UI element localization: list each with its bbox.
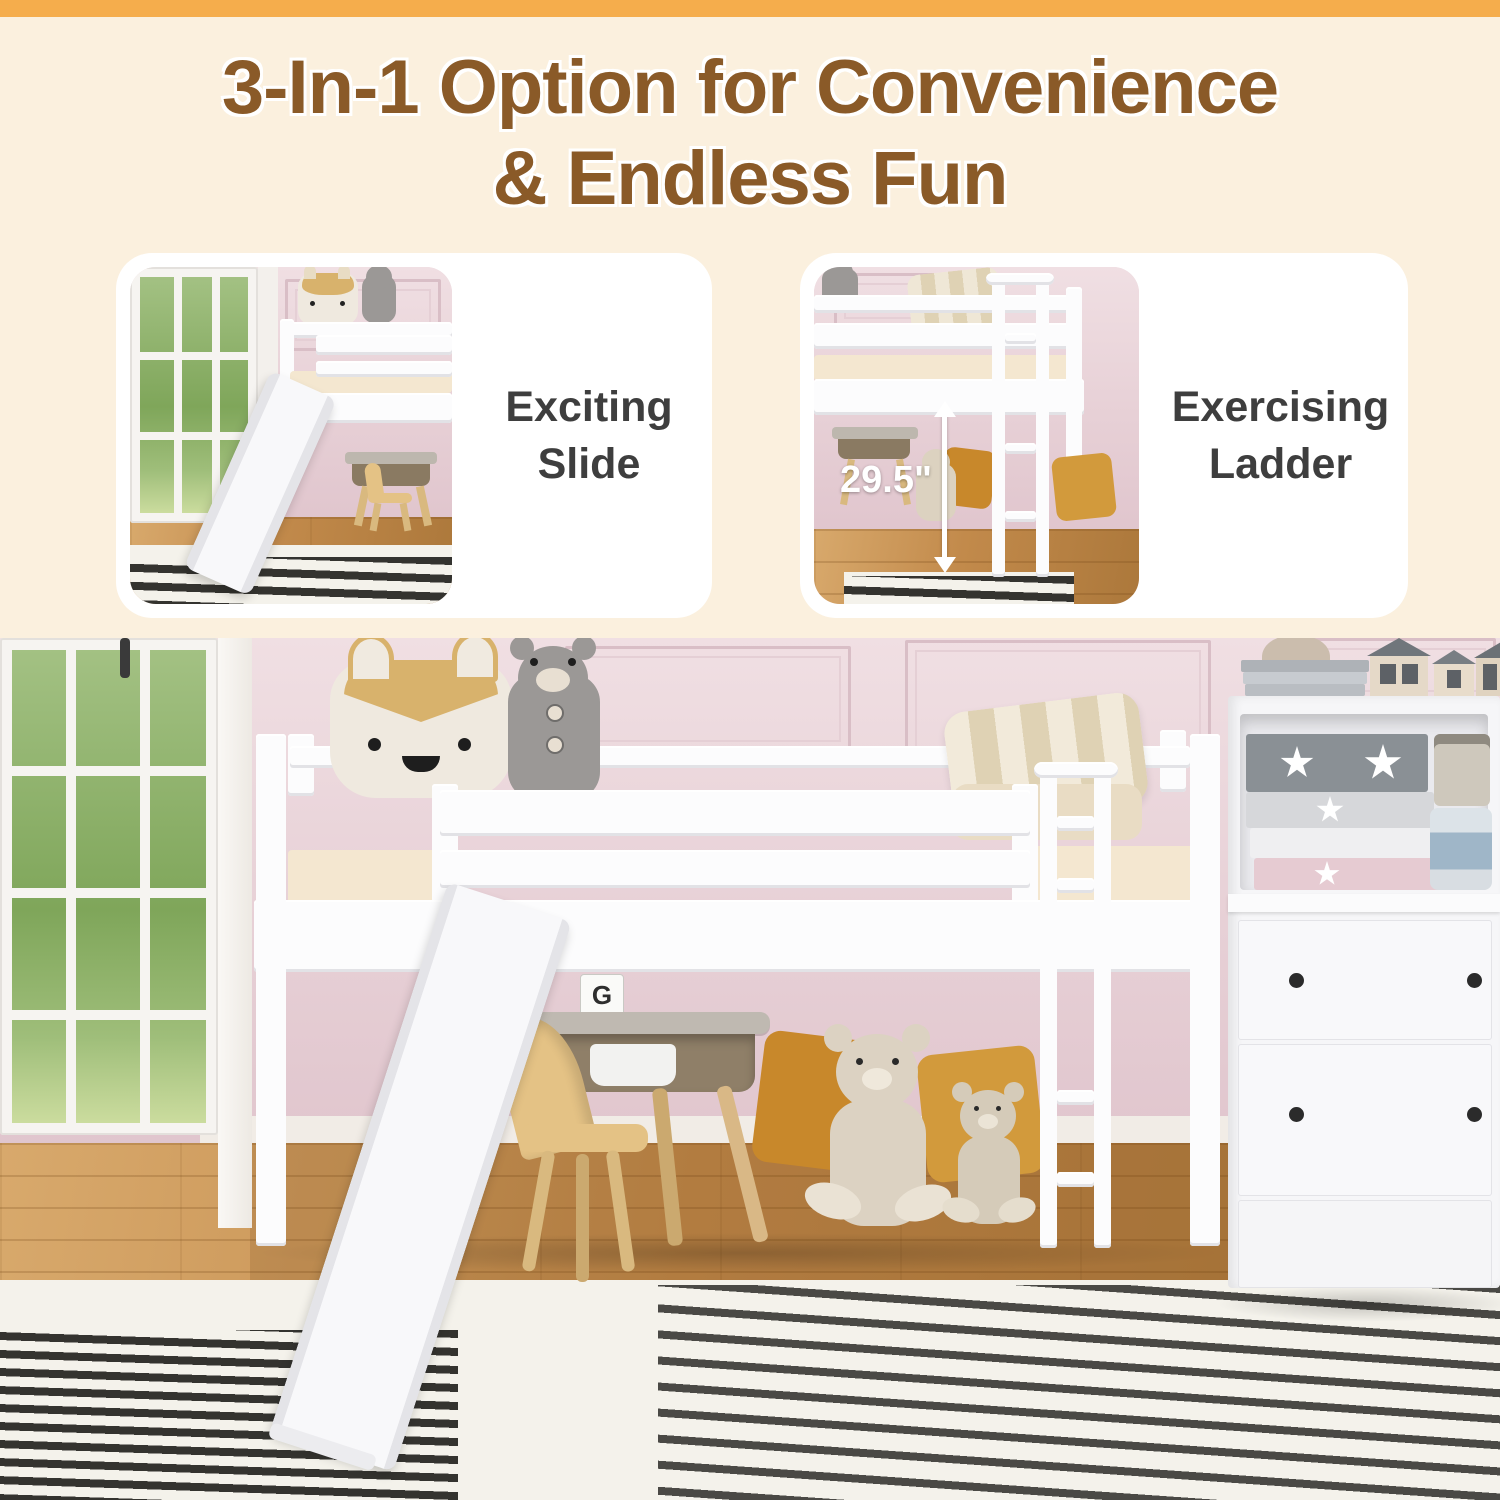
- ladder-rail: [1094, 772, 1111, 1248]
- ladder-rail: [992, 281, 1005, 577]
- window-mullion: [140, 432, 248, 440]
- fox-eye: [368, 738, 381, 751]
- teddy-bear: [362, 275, 396, 323]
- window-mullion: [140, 352, 248, 360]
- plush-bear-ear: [824, 1024, 852, 1052]
- star-decoration: [1280, 746, 1314, 780]
- star-box-pink: [1254, 858, 1446, 890]
- ladder-rung: [1005, 511, 1036, 522]
- slide-label: Exciting Slide: [466, 253, 712, 618]
- ladder-hook: [986, 273, 1054, 285]
- teddy-bear-muzzle: [536, 668, 570, 692]
- decor-house: [1476, 642, 1500, 696]
- bed-leg-right: [1190, 734, 1220, 1246]
- fox-ear: [348, 638, 394, 684]
- fox-eye: [310, 301, 315, 306]
- kids-desk: [832, 427, 918, 439]
- ladder-label: Exercising Ladder: [1153, 253, 1408, 618]
- measure-arrow-line: [942, 415, 947, 559]
- window-mullion: [174, 277, 182, 513]
- mustard-pillow: [1051, 452, 1117, 522]
- blue-tin: [1430, 808, 1492, 890]
- product-poster: 3-In-1 Option for Convenience & Endless …: [0, 0, 1500, 1500]
- house-window: [1483, 664, 1497, 690]
- star-decoration: [1364, 744, 1402, 782]
- fox-pillow: [330, 660, 512, 798]
- dresser-divider: [1228, 894, 1500, 912]
- page-title: 3-In-1 Option for Convenience & Endless …: [0, 42, 1500, 224]
- plush-bear-large: [808, 1034, 958, 1264]
- plush-bear-eye: [856, 1058, 863, 1065]
- bed-leg-left: [256, 734, 286, 1246]
- window-greenery: [12, 650, 206, 1123]
- house-roof: [1432, 650, 1476, 664]
- drawer-knob: [1467, 973, 1482, 988]
- plush-bear-muzzle: [978, 1114, 998, 1129]
- dresser-shadow: [1216, 1286, 1500, 1322]
- bed-guard-rail: [440, 850, 1030, 888]
- plush-bear-ear: [902, 1024, 930, 1052]
- fox-eye: [458, 738, 471, 751]
- chair-leg: [576, 1154, 589, 1282]
- drawer: [1238, 920, 1492, 1040]
- plush-bear-ear: [1004, 1082, 1024, 1102]
- fox-pillow: [298, 273, 358, 325]
- window-latch: [120, 638, 130, 678]
- bed-guard-rail: [440, 790, 1030, 836]
- teddy-bear-eye: [530, 658, 538, 666]
- room-photo: G K I: [0, 638, 1500, 1500]
- house-body: [1370, 654, 1428, 696]
- ladder-rung: [1057, 1172, 1094, 1187]
- bed-back-rail: [814, 295, 1074, 313]
- ladder-label-line-1: Exercising: [1172, 379, 1390, 436]
- star-box-light: [1246, 792, 1434, 828]
- star-box-white: [1250, 828, 1442, 858]
- star-box-dark: [1246, 734, 1428, 792]
- house-window: [1380, 664, 1396, 684]
- plush-bear-eye: [892, 1058, 899, 1065]
- plush-bear-ear: [952, 1082, 972, 1102]
- window-mullion: [66, 650, 76, 1123]
- ladder-rail: [1036, 281, 1049, 577]
- ladder-rung: [1057, 878, 1094, 893]
- striped-rug: [130, 545, 452, 604]
- teddy-bear-eye: [568, 658, 576, 666]
- measure-label: 29.5": [836, 459, 936, 502]
- fox-ear: [452, 638, 498, 682]
- title-line-1: 3-In-1 Option for Convenience: [0, 42, 1500, 133]
- house-roof: [1367, 638, 1431, 656]
- fox-eye: [340, 301, 345, 306]
- plush-bear-small: [944, 1090, 1034, 1262]
- rug-stripes: [844, 576, 1074, 604]
- chair-seat: [520, 1124, 648, 1152]
- letter-block-g: G: [580, 974, 624, 1016]
- dresser: [1228, 638, 1500, 1318]
- teddy-bear: [508, 674, 600, 800]
- teddy-bear-head: [366, 267, 392, 289]
- wall-panel: [565, 646, 851, 752]
- bed-guard-rail: [316, 335, 452, 355]
- ladder-rung: [1005, 443, 1036, 454]
- top-accent-strip: [0, 0, 1500, 17]
- decor-house: [1370, 638, 1428, 696]
- teddy-bear-head: [827, 267, 853, 283]
- drawer-knob: [1467, 1107, 1482, 1122]
- plush-bear-eye: [996, 1106, 1001, 1111]
- window-mullion: [12, 766, 206, 776]
- feature-card-slide: Exciting Slide: [116, 253, 712, 618]
- ladder-rung: [1057, 816, 1094, 831]
- slide-label-line-1: Exciting: [505, 379, 672, 436]
- fox-smile: [402, 756, 440, 772]
- drawer: [1238, 1200, 1492, 1288]
- window-mullion: [12, 1010, 206, 1020]
- house-window: [1447, 670, 1461, 688]
- rug-stripes: [130, 557, 452, 604]
- measure-arrow-down: [934, 557, 956, 573]
- drawer: [1238, 1044, 1492, 1196]
- measure-arrow-up: [934, 401, 956, 417]
- ladder-rung: [1057, 1090, 1094, 1105]
- kids-desk: [345, 452, 437, 464]
- fox-ear: [304, 267, 316, 279]
- ladder-rung: [1005, 333, 1036, 344]
- drawer-knob: [1289, 1107, 1304, 1122]
- ladder-label-line-2: Ladder: [1209, 436, 1352, 493]
- house-window: [1402, 664, 1418, 684]
- slide-label-line-2: Slide: [538, 436, 641, 493]
- curtain-trim: [218, 638, 252, 1228]
- plush-bear-muzzle: [862, 1068, 892, 1090]
- treat-jar: [1434, 734, 1490, 806]
- window-mullion: [140, 650, 150, 1123]
- storage-basket: [590, 1044, 676, 1086]
- ladder-hook: [1034, 762, 1118, 778]
- desk-shelf: [352, 464, 430, 486]
- teddy-bear-button: [546, 736, 564, 754]
- title-line-2: & Endless Fun: [0, 133, 1500, 224]
- window-mullion: [212, 277, 220, 513]
- ladder-rail: [1040, 772, 1057, 1248]
- desk-shelf: [838, 439, 910, 459]
- drawer-knob: [1289, 973, 1304, 988]
- feature-card-ladder: 29.5" Exercising Ladder: [800, 253, 1408, 618]
- bed-guard-rail: [316, 361, 452, 377]
- star-decoration: [1314, 861, 1340, 887]
- star-decoration: [1316, 796, 1344, 824]
- slide-photo: [130, 267, 452, 604]
- decor-house: [1434, 650, 1474, 696]
- bed-frame-base: [254, 900, 1220, 972]
- book-stack: [1243, 672, 1367, 684]
- fox-ear: [338, 267, 350, 279]
- plush-bear-eye: [974, 1106, 979, 1111]
- ladder-photo: 29.5": [814, 267, 1139, 604]
- window: [0, 638, 218, 1135]
- window-mullion: [12, 888, 206, 898]
- book-stack: [1245, 684, 1365, 696]
- teddy-bear-button: [546, 704, 564, 722]
- house-roof: [1474, 642, 1500, 658]
- book-stack: [1241, 660, 1369, 672]
